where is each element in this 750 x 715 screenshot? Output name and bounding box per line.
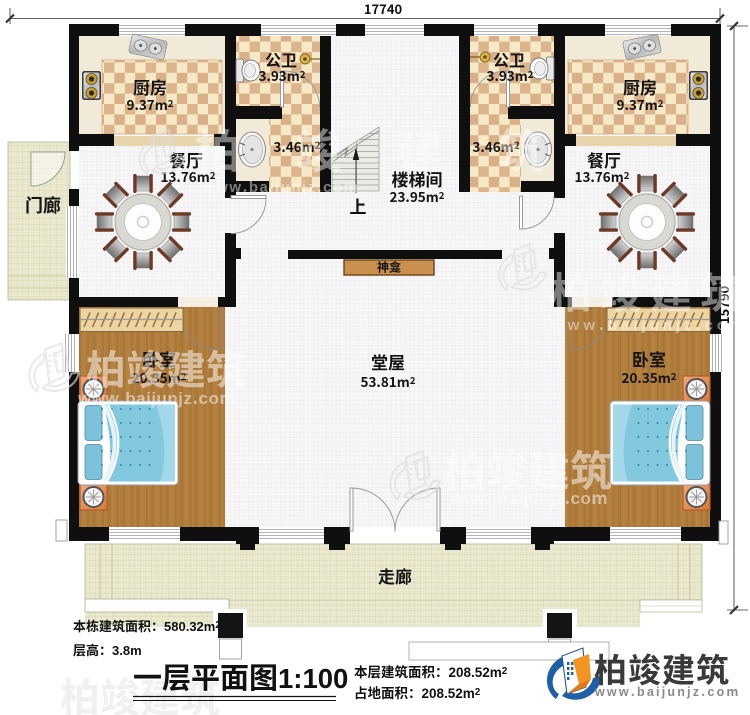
svg-text:17740: 17740 <box>364 0 403 18</box>
svg-text:www.baijunjz.com: www.baijunjz.com <box>449 484 608 509</box>
svg-text:神龛: 神龛 <box>377 259 401 276</box>
svg-text:本栋建筑面积：580.32m2: 本栋建筑面积：580.32m2 <box>73 616 221 635</box>
svg-text:www.baijunjz.com: www.baijunjz.com <box>594 681 741 700</box>
svg-text:一层平面图1:100: 一层平面图1:100 <box>133 655 348 697</box>
svg-text:53.81m2: 53.81m2 <box>361 371 416 391</box>
svg-text:3.93m2: 3.93m2 <box>486 65 533 85</box>
svg-text:走廊: 走廊 <box>378 563 412 588</box>
svg-text:9.37m2: 9.37m2 <box>126 94 173 114</box>
svg-text:www.baijunjz.com: www.baijunjz.com <box>77 384 236 409</box>
svg-text:门廊: 门廊 <box>25 192 61 218</box>
svg-text:9.37m2: 9.37m2 <box>616 94 663 114</box>
svg-text:柏竣建筑: 柏竣建筑 <box>550 260 750 321</box>
svg-text:本层建筑面积：208.52m2: 本层建筑面积：208.52m2 <box>354 661 508 681</box>
svg-text:3.93m2: 3.93m2 <box>258 65 305 85</box>
svg-text:占地面积：208.52m2: 占地面积：208.52m2 <box>354 682 481 702</box>
svg-text:www.baijunjz.com: www.baijunjz.com <box>202 176 360 197</box>
svg-text:www.baijunjz.com: www.baijunjz.com <box>551 314 749 335</box>
svg-text:层高：3.8m: 层高：3.8m <box>73 640 142 659</box>
svg-text:20.35m2: 20.35m2 <box>622 367 677 387</box>
svg-text:柏竣建筑: 柏竣建筑 <box>195 116 599 182</box>
svg-text:23.95m2: 23.95m2 <box>390 186 445 206</box>
